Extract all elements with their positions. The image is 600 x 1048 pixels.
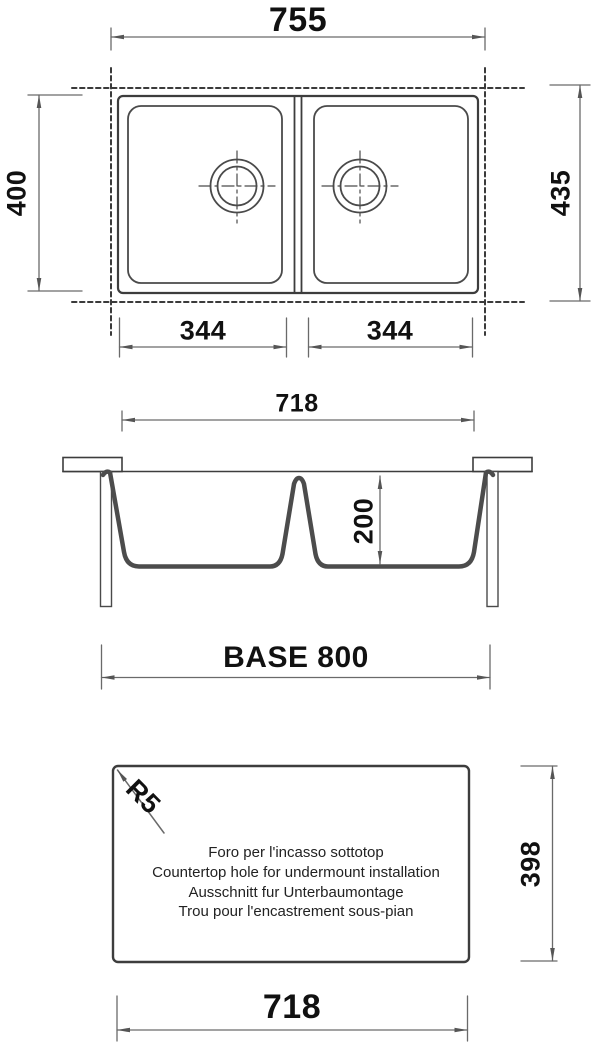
label-bowl-width-right: 344	[367, 318, 414, 345]
note-line-italian: Foro per l'incasso sottotop	[152, 843, 440, 863]
note-line-english: Countertop hole for undermount installat…	[152, 863, 440, 883]
installation-notes: Foro per l'incasso sottotop Countertop h…	[152, 843, 440, 922]
label-cutout-height: 398	[518, 841, 545, 888]
label-base-cabinet: BASE 800	[223, 643, 369, 673]
countertop	[63, 458, 532, 472]
label-bowl-width-left: 344	[180, 318, 227, 345]
note-line-german: Ausschnitt fur Unterbaumontage	[152, 883, 440, 903]
sink-outer-rect	[118, 96, 478, 293]
note-line-french: Trou pour l'encastrement sous-pian	[152, 902, 440, 922]
label-bowl-height: 200	[351, 498, 378, 545]
label-cutout-width: 718	[263, 990, 321, 1024]
technical-drawing: 755 400 435 344 344 718 200 BASE 800 R5 …	[0, 0, 600, 1048]
label-depth-left: 400	[4, 170, 31, 217]
cabinet-leg-right	[487, 472, 498, 607]
label-depth-right: 435	[548, 170, 575, 217]
label-rim-width: 718	[275, 392, 318, 417]
label-overall-width: 755	[269, 3, 327, 37]
dim-400	[28, 95, 82, 291]
top-view	[28, 28, 590, 357]
cabinet-leg-left	[101, 472, 112, 607]
bowl-section-profile	[103, 472, 493, 567]
